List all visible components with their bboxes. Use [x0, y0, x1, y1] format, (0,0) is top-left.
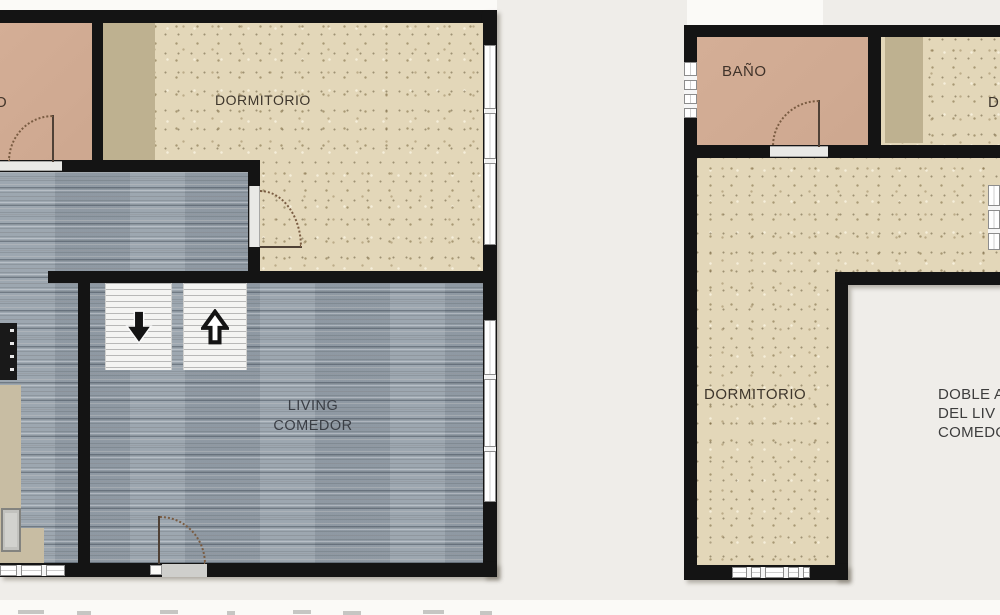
cooktop-knob [10, 368, 14, 371]
cooktop [0, 323, 17, 380]
entry-door-opening [162, 564, 207, 577]
stair-flight-down [105, 283, 172, 370]
window-frame-tick [798, 567, 804, 578]
window-frame-tick [988, 205, 1000, 211]
window-living [484, 320, 496, 502]
cropped-row-artifact [227, 611, 235, 615]
cropped-row-artifact [343, 611, 361, 615]
living-label: LIVING COMEDOR [248, 396, 378, 436]
window-frame-tick [484, 158, 496, 164]
window-frame-tick [484, 374, 496, 380]
wall-bano-second-bedroom [868, 37, 881, 145]
cropped-row-artifact [480, 611, 492, 615]
bano-door-threshold [770, 146, 828, 157]
closet-strip-left [103, 23, 155, 160]
cooktop-knob [10, 342, 14, 345]
stair-flight-up [183, 283, 247, 370]
window-bedroom-right-edge [988, 185, 1000, 250]
cooktop-knob [10, 355, 14, 358]
sink-basin [5, 513, 17, 547]
window-frame-tick [760, 567, 766, 578]
wall-lower-arm-right [835, 285, 848, 580]
bedroom-label-left: DORMITORIO [215, 92, 311, 108]
living-label-line2: COMEDOR [248, 416, 378, 436]
paper-band-top-right [687, 0, 823, 25]
double-height-note-line2: DEL LIV [938, 404, 1000, 423]
window-frame-tick [484, 446, 496, 452]
window-frame-tick [16, 565, 22, 576]
bathroom-label-partial-left: O [0, 94, 7, 111]
wall-bath-bedroom [92, 23, 103, 172]
window-frame-tick [684, 103, 697, 109]
window-frame-tick [684, 75, 697, 81]
closet-strip-right [885, 37, 923, 143]
cropped-row-artifact [18, 610, 44, 614]
window-frame-tick [988, 228, 1000, 234]
cropped-row-artifact [77, 611, 91, 615]
double-height-note-line1: DOBLE A [938, 385, 1000, 404]
window-frame-tick [746, 567, 752, 578]
second-bedroom-label-partial: D [988, 94, 999, 111]
wall-below-bano [684, 145, 1000, 158]
bano-label: BAÑO [722, 63, 767, 80]
paper-band-bottom [0, 600, 1000, 615]
corridor-floor [0, 160, 250, 283]
cropped-row-artifact [293, 610, 311, 614]
stairs-up-arrow-icon [201, 309, 229, 345]
window-frame-tick [484, 108, 496, 114]
bedroom-door-threshold [249, 186, 260, 247]
cropped-row-artifact [160, 610, 178, 614]
double-height-note-line3: COMEDO [938, 423, 1000, 442]
cropped-row-artifact [423, 610, 444, 614]
window-bedroom-left [484, 45, 496, 245]
living-label-line1: LIVING [248, 396, 378, 416]
wall-top-right-plan [684, 25, 1000, 37]
wall-top-left-plan [0, 10, 497, 23]
window-frame-tick [783, 567, 789, 578]
window-frame-tick [684, 89, 697, 95]
bathroom-door-threshold [0, 161, 62, 171]
entry-door-hinge-block [150, 565, 162, 575]
wall-bedroom-living [48, 271, 497, 283]
wall-bottom-left-plan [0, 563, 497, 577]
window-kitchen-bottom [0, 565, 65, 576]
bedroom-floor-right-lower-arm [697, 155, 847, 577]
window-frame-tick [41, 565, 47, 576]
stairs-down-arrow-icon [125, 308, 153, 346]
wall-upper-arm-bottom [835, 272, 1000, 285]
kitchen-sink [1, 508, 21, 552]
double-height-note: DOBLE A DEL LIV COMEDO [938, 385, 1000, 442]
wall-kitchen-living [78, 283, 90, 563]
cooktop-knob [10, 329, 14, 332]
floor-plan-sheet: O DORMITORIO LIVING COMEDOR [0, 0, 1000, 615]
bedroom-label-right: DORMITORIO [704, 386, 806, 403]
paper-band-top-left [0, 0, 497, 10]
